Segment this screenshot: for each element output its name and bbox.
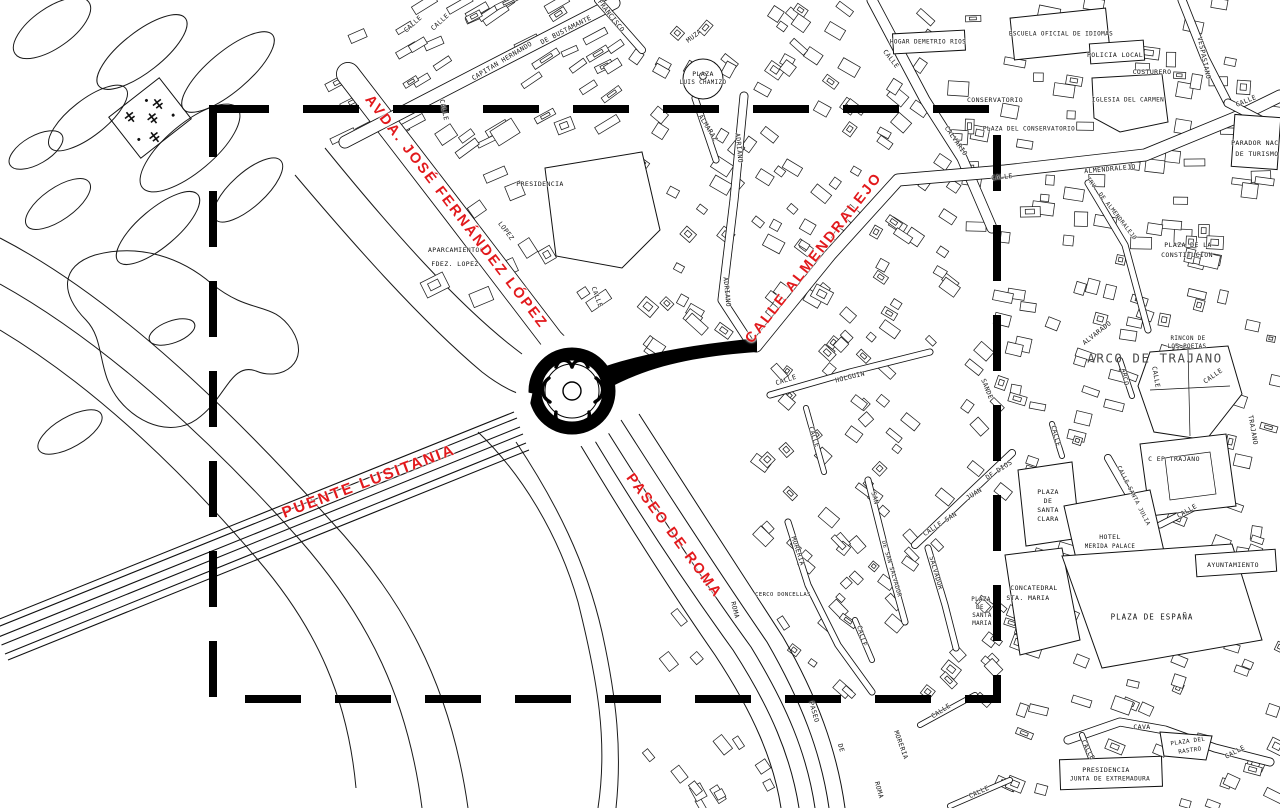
parador-building — [1231, 114, 1280, 169]
paseo-roma-road — [575, 414, 845, 808]
park-trees — [109, 78, 191, 158]
presidencia-building — [545, 152, 660, 268]
iglesia-carmen-building — [1092, 74, 1168, 132]
policia-building — [1089, 40, 1144, 64]
presidencia-junta-building — [1060, 756, 1163, 790]
plaza-rastro — [1160, 732, 1212, 760]
bridge-lusitania — [0, 412, 529, 660]
landmark-buildings — [545, 8, 1280, 790]
roundabout — [516, 335, 628, 447]
hogar-demetrio-building — [893, 30, 966, 54]
map-canvas — [0, 0, 1280, 808]
city-map: CALLECALLECAPITAN HERNANDODE BUSTAMANTEF… — [0, 0, 1280, 808]
highlighted-route — [606, 338, 757, 387]
